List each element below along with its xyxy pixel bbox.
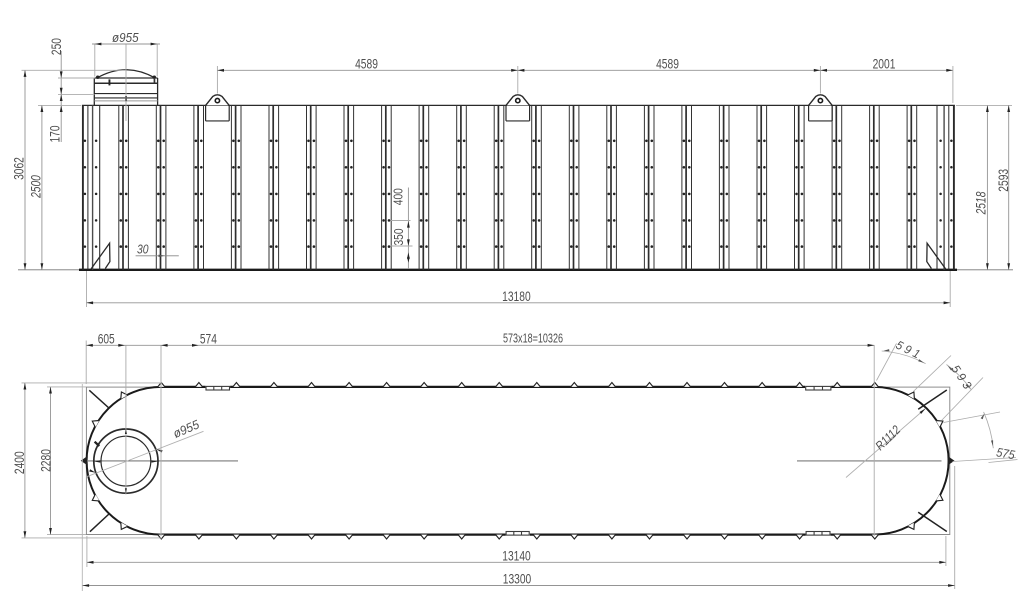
svg-text:13300: 13300 (503, 571, 532, 587)
svg-text:400: 400 (391, 188, 406, 205)
svg-text:573x18=10326: 573x18=10326 (503, 332, 563, 346)
svg-text:13140: 13140 (502, 547, 531, 563)
svg-text:3062: 3062 (10, 157, 26, 180)
svg-text:574: 574 (200, 331, 217, 347)
svg-text:2400: 2400 (11, 451, 27, 474)
svg-text:4589: 4589 (355, 55, 378, 71)
svg-text:2280: 2280 (38, 449, 54, 472)
svg-text:350: 350 (391, 229, 406, 246)
svg-text:4589: 4589 (656, 55, 679, 71)
svg-text:ø955: ø955 (112, 31, 139, 45)
svg-text:605: 605 (98, 331, 115, 347)
svg-text:13180: 13180 (502, 288, 531, 304)
svg-text:170: 170 (47, 125, 63, 142)
svg-text:30: 30 (137, 242, 149, 257)
svg-text:250: 250 (48, 38, 64, 55)
svg-text:2518: 2518 (972, 191, 988, 215)
svg-text:2001: 2001 (873, 55, 896, 71)
svg-text:2500: 2500 (27, 175, 43, 199)
svg-text:2593: 2593 (995, 169, 1011, 192)
